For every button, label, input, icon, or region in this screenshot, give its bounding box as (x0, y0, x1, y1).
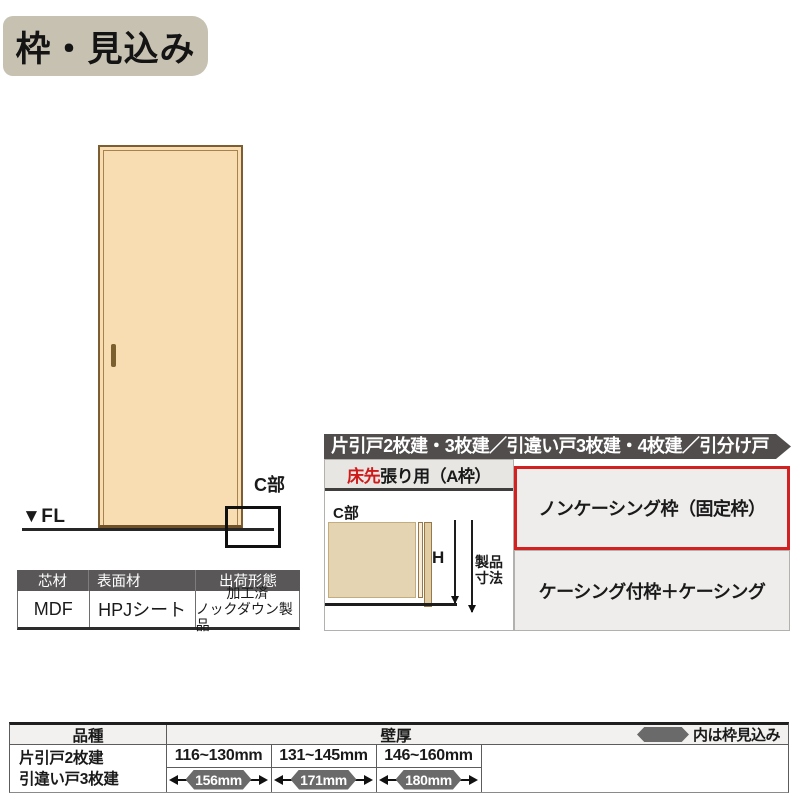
spec-header-kind: 品種 (10, 725, 166, 744)
frame-depth-badge-2: 171mm (291, 770, 357, 790)
wall-range-cell-3: 146~160mm (376, 744, 481, 767)
door-inner-frame-line (103, 150, 238, 525)
frame-depth-badge-3: 180mm (396, 770, 462, 790)
product-dimension-line1: 製品 (475, 554, 503, 570)
floor-type-title: 床先張り用（A枠） (325, 460, 513, 491)
door-illustration (98, 145, 243, 529)
frame-depth-badge-sample (637, 727, 689, 742)
dimension-arrow-product (468, 605, 476, 613)
materials-table: 芯材 表面材 出荷形態 MDF HPJシート 加工済 ノックダウン製品 (17, 570, 300, 630)
frame-depth-cell-3: 180mm (376, 767, 481, 792)
dimension-line-h (454, 520, 456, 603)
wall-range-cell-1: 116~130mm (166, 744, 271, 767)
c-section-label: C部 (254, 471, 285, 497)
c-section-label-detail: C部 (333, 502, 359, 523)
page-title-text: 枠・見込み (15, 21, 195, 72)
floor-level-label: ▼FL (22, 506, 66, 528)
materials-core-value: MDF (18, 591, 89, 627)
option-noncasing-label: ノンケーシング枠（固定枠） (538, 495, 765, 521)
c-section-callout-rect (225, 506, 281, 548)
materials-header-surface: 表面材 (88, 570, 195, 591)
spec-products-cell: 片引戸2枚建 引違い戸3枚建 (19, 748, 119, 790)
frame-depth-cell-1: 156mm (166, 767, 271, 792)
door-type-header-bar: 片引戸2枚建・3枚建／引違い戸3枚建・4枚建／引分け戸 (324, 434, 791, 459)
cross-section-frame-strip-light (418, 522, 423, 598)
materials-shipping-value: 加工済 ノックダウン製品 (195, 591, 299, 627)
spec-product-2: 引違い戸3枚建 (19, 769, 119, 790)
cross-section-frame-strip-tan (424, 522, 432, 607)
catalog-page: 枠・見込み ▼FL C部 芯材 表面材 出荷形態 MDF HPJシート 加工済 … (0, 0, 800, 800)
option-noncasing-frame[interactable]: ノンケーシング枠（固定枠） (514, 466, 790, 550)
door-handle (111, 344, 116, 367)
floor-type-panel: 床先張り用（A枠） C部 H 製品 寸法 (324, 459, 514, 631)
page-title: 枠・見込み (3, 16, 208, 76)
floor-type-title-red: 床先 (347, 462, 380, 487)
materials-shipping-line1: 加工済 (226, 585, 268, 601)
option-casing-label: ケーシング付枠＋ケーシング (539, 578, 766, 604)
cross-section-door-panel (328, 522, 416, 598)
cross-section-floor-line (325, 603, 457, 606)
product-dimension-label: 製品 寸法 (475, 554, 503, 586)
height-dimension-label: H (432, 548, 444, 568)
frame-depth-badge-1: 156mm (186, 770, 252, 790)
spec-legend: 内は枠見込み (637, 725, 780, 744)
wall-range-cell-2: 131~145mm (271, 744, 376, 767)
floor-type-title-rest: 張り用（A枠） (380, 462, 491, 487)
option-casing-frame[interactable]: ケーシング付枠＋ケーシング (514, 550, 790, 631)
materials-table-row: MDF HPJシート 加工済 ノックダウン製品 (17, 591, 300, 630)
materials-surface-value: HPJシート (89, 591, 195, 627)
spec-product-1: 片引戸2枚建 (19, 748, 119, 769)
spec-col-divider-3 (481, 744, 482, 792)
materials-shipping-line2: ノックダウン製品 (196, 601, 299, 633)
materials-header-core: 芯材 (17, 570, 88, 591)
frame-depth-cell-2: 171mm (271, 767, 376, 792)
dimension-arrow-h (451, 596, 459, 604)
product-dimension-line2: 寸法 (475, 570, 503, 586)
spec-legend-note: 内は枠見込み (693, 724, 780, 745)
dimension-line-product (471, 520, 473, 612)
spec-table: 品種 壁厚 内は枠見込み 片引戸2枚建 引違い戸3枚建 116~130mm 13… (9, 722, 789, 793)
spec-header-wall: 壁厚 (166, 725, 626, 744)
